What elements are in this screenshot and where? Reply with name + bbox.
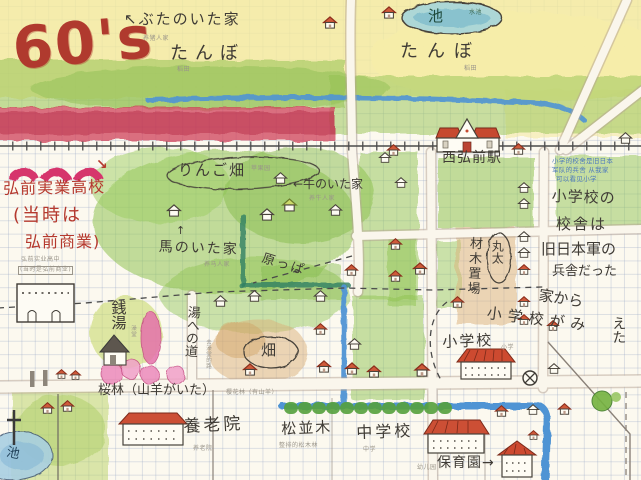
- pig-house-label: ↖ぶたのいた家: [124, 11, 241, 28]
- junior-high-note: 中学: [363, 447, 376, 454]
- nursery-building-icon: [498, 441, 536, 477]
- house-icon: [549, 364, 560, 374]
- nursery-note: 幼儿园: [417, 465, 437, 472]
- nursing-home-building-icon: [119, 413, 187, 445]
- tanbo-right-label: たんぼ: [400, 42, 481, 62]
- hand-drawn-map: 60's ↖ぶたのいた家 养猪人家 たんぼ 稻田 たんぼ 稻田 池 水池 西弘前…: [0, 0, 641, 480]
- apple-orchard-label: りんご畑: [178, 162, 246, 179]
- high-school-arrow: ↘: [96, 158, 108, 173]
- school-note-jp-2: 校舎は: [556, 216, 607, 233]
- house-icon: [559, 404, 571, 415]
- pond-top: [402, 2, 502, 34]
- crossing-symbol-icon: [523, 371, 537, 385]
- house-icon: [519, 248, 530, 258]
- post-icon: [30, 371, 35, 387]
- post-icon: [43, 370, 48, 386]
- nursing-home-label: 養老院: [183, 415, 244, 437]
- house-icon: [315, 324, 327, 335]
- tanbo-right-note: 稻田: [464, 66, 477, 73]
- junior-high-building-icon: [424, 420, 489, 453]
- horse-house-arrow: ↑: [176, 225, 185, 237]
- pond-top-label: 池: [428, 8, 443, 25]
- tanbo-left-label: たんぼ: [170, 44, 245, 64]
- house-icon: [71, 371, 81, 380]
- lumber-yard-label: 材木置場: [464, 236, 481, 297]
- school-note-jp-1: 小学校の: [551, 188, 616, 207]
- tree-icon: [592, 391, 612, 411]
- sento-label: 銭湯: [110, 300, 127, 330]
- hatake-label: 畑: [261, 342, 276, 359]
- elementary-school-building-icon: [457, 349, 515, 379]
- school-note-jp-4: 兵舎だった: [552, 265, 617, 279]
- school-note-cn-2: 军队的兵舎 从我家: [552, 166, 609, 175]
- pond-top-note: 水池: [469, 10, 482, 17]
- elementary-label: 小学校: [442, 332, 494, 350]
- school-note-jp-3: 旧日本軍の: [541, 241, 616, 258]
- bath-road-note: 去澡堂的路: [205, 339, 211, 369]
- high-school-line-1: 弘前実業高校: [3, 178, 105, 197]
- pines-label: 松並木: [281, 419, 333, 437]
- nursery-label: 保育園→: [437, 456, 495, 471]
- house-icon: [519, 297, 530, 307]
- pig-house-note: 养猪人家: [143, 36, 169, 43]
- school-note-jp-7: えた: [610, 316, 625, 344]
- nursing-home-note: 养老院: [193, 446, 213, 453]
- sakura-label: 桜林（山羊がいた）: [98, 384, 215, 398]
- house-icon: [57, 370, 67, 379]
- elementary-note: 小学: [501, 345, 514, 352]
- high-school-line-3: 弘前商業): [25, 233, 100, 251]
- house-icon: [318, 361, 331, 372]
- cow-house-label: ←牛のいた家: [293, 178, 363, 191]
- cow-house-note: 养牛人家: [309, 196, 335, 203]
- high-school-building-icon: [17, 284, 74, 322]
- apple-orchard-note: 苹果园: [251, 166, 271, 173]
- sakura-note: 樱花林（有山羊）: [226, 390, 278, 397]
- school-note-cn-3: 可以看见小学: [556, 175, 597, 184]
- tanbo-left-note: 稻田: [177, 67, 190, 74]
- high-school-note-1: 弘前实业高中: [21, 257, 60, 264]
- horse-house-note: 养马人家: [204, 262, 230, 269]
- high-school-line-2: (当時は: [13, 206, 82, 226]
- high-school-note-2: (当时是弘前商业): [18, 266, 73, 275]
- junior-high-label: 中学校: [356, 422, 414, 442]
- school-note-cn-1: 小学的校舍是旧日本: [552, 157, 613, 166]
- bath-road-label: 湯への道: [181, 305, 199, 358]
- pines-note: 整排的松木林: [279, 443, 318, 450]
- lumber-maruta-label: 丸太: [490, 240, 503, 264]
- house-icon: [519, 265, 530, 275]
- sento-note: 澡堂: [130, 325, 136, 337]
- station-label: 西弘前駅: [442, 151, 502, 166]
- house-icon: [529, 431, 539, 440]
- horse-house-label: 馬のいた家: [158, 240, 238, 258]
